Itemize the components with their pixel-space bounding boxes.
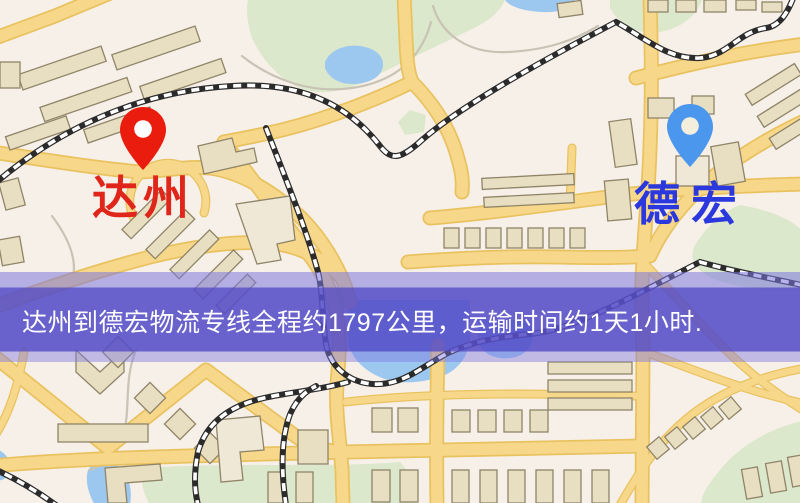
map-screenshot: 达州 德宏 达州到德宏物流专线全程约1797公里，运输时间约1天1小时. bbox=[0, 0, 800, 503]
map-canvas bbox=[0, 0, 800, 503]
route-info-banner: 达州到德宏物流专线全程约1797公里，运输时间约1天1小时. bbox=[0, 272, 800, 362]
destination-city-label: 德宏 bbox=[634, 182, 748, 228]
origin-city-label: 达州 bbox=[92, 176, 194, 222]
route-info-text: 达州到德宏物流专线全程约1797公里，运输时间约1天1小时. bbox=[22, 303, 800, 339]
